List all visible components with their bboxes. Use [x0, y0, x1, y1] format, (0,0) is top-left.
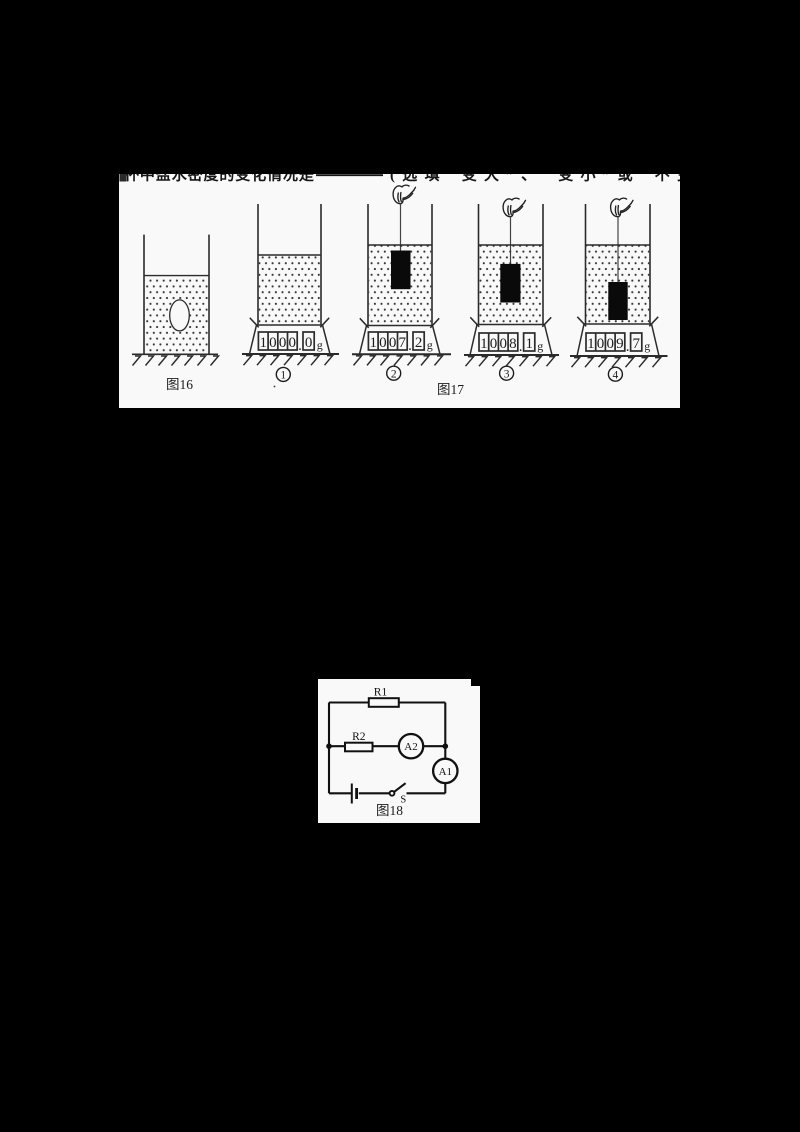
- svg-text:g: g: [427, 338, 433, 352]
- svg-text:0: 0: [490, 336, 498, 352]
- svg-text:0: 0: [597, 336, 605, 352]
- svg-text:9: 9: [616, 336, 624, 352]
- svg-text:1: 1: [260, 335, 268, 351]
- svg-text:.: .: [519, 339, 523, 355]
- svg-text:7: 7: [632, 336, 640, 352]
- svg-text:4: 4: [613, 369, 619, 381]
- svg-text:.: .: [298, 338, 302, 354]
- svg-text:A2: A2: [404, 741, 417, 753]
- svg-text:图18: 图18: [376, 803, 403, 818]
- svg-text:1: 1: [370, 335, 378, 351]
- svg-text:8: 8: [509, 336, 517, 352]
- svg-text:g: g: [537, 339, 543, 353]
- svg-text:.: .: [408, 338, 412, 354]
- svg-text:g: g: [317, 338, 323, 352]
- svg-text:0: 0: [379, 335, 387, 351]
- svg-text:g: g: [644, 339, 650, 353]
- svg-text:0: 0: [289, 335, 297, 351]
- svg-text:.: .: [626, 339, 630, 355]
- svg-text:1: 1: [480, 336, 488, 352]
- svg-text:A1: A1: [439, 766, 452, 778]
- svg-text:R2: R2: [352, 731, 366, 743]
- svg-text:0: 0: [606, 336, 614, 352]
- svg-text:1: 1: [587, 336, 595, 352]
- svg-text:图17: 图17: [437, 382, 464, 397]
- svg-text:1: 1: [280, 370, 286, 382]
- svg-text:2: 2: [415, 335, 423, 351]
- svg-text:0: 0: [269, 335, 277, 351]
- svg-text:0: 0: [499, 336, 507, 352]
- svg-text:图16: 图16: [166, 377, 193, 392]
- svg-text:1: 1: [525, 336, 533, 352]
- svg-text:7: 7: [399, 335, 407, 351]
- svg-text:0: 0: [305, 335, 313, 351]
- svg-text:0: 0: [389, 335, 397, 351]
- svg-text:2: 2: [391, 368, 397, 380]
- svg-text:0: 0: [279, 335, 287, 351]
- svg-text:R1: R1: [374, 687, 388, 699]
- svg-text:3: 3: [504, 368, 510, 380]
